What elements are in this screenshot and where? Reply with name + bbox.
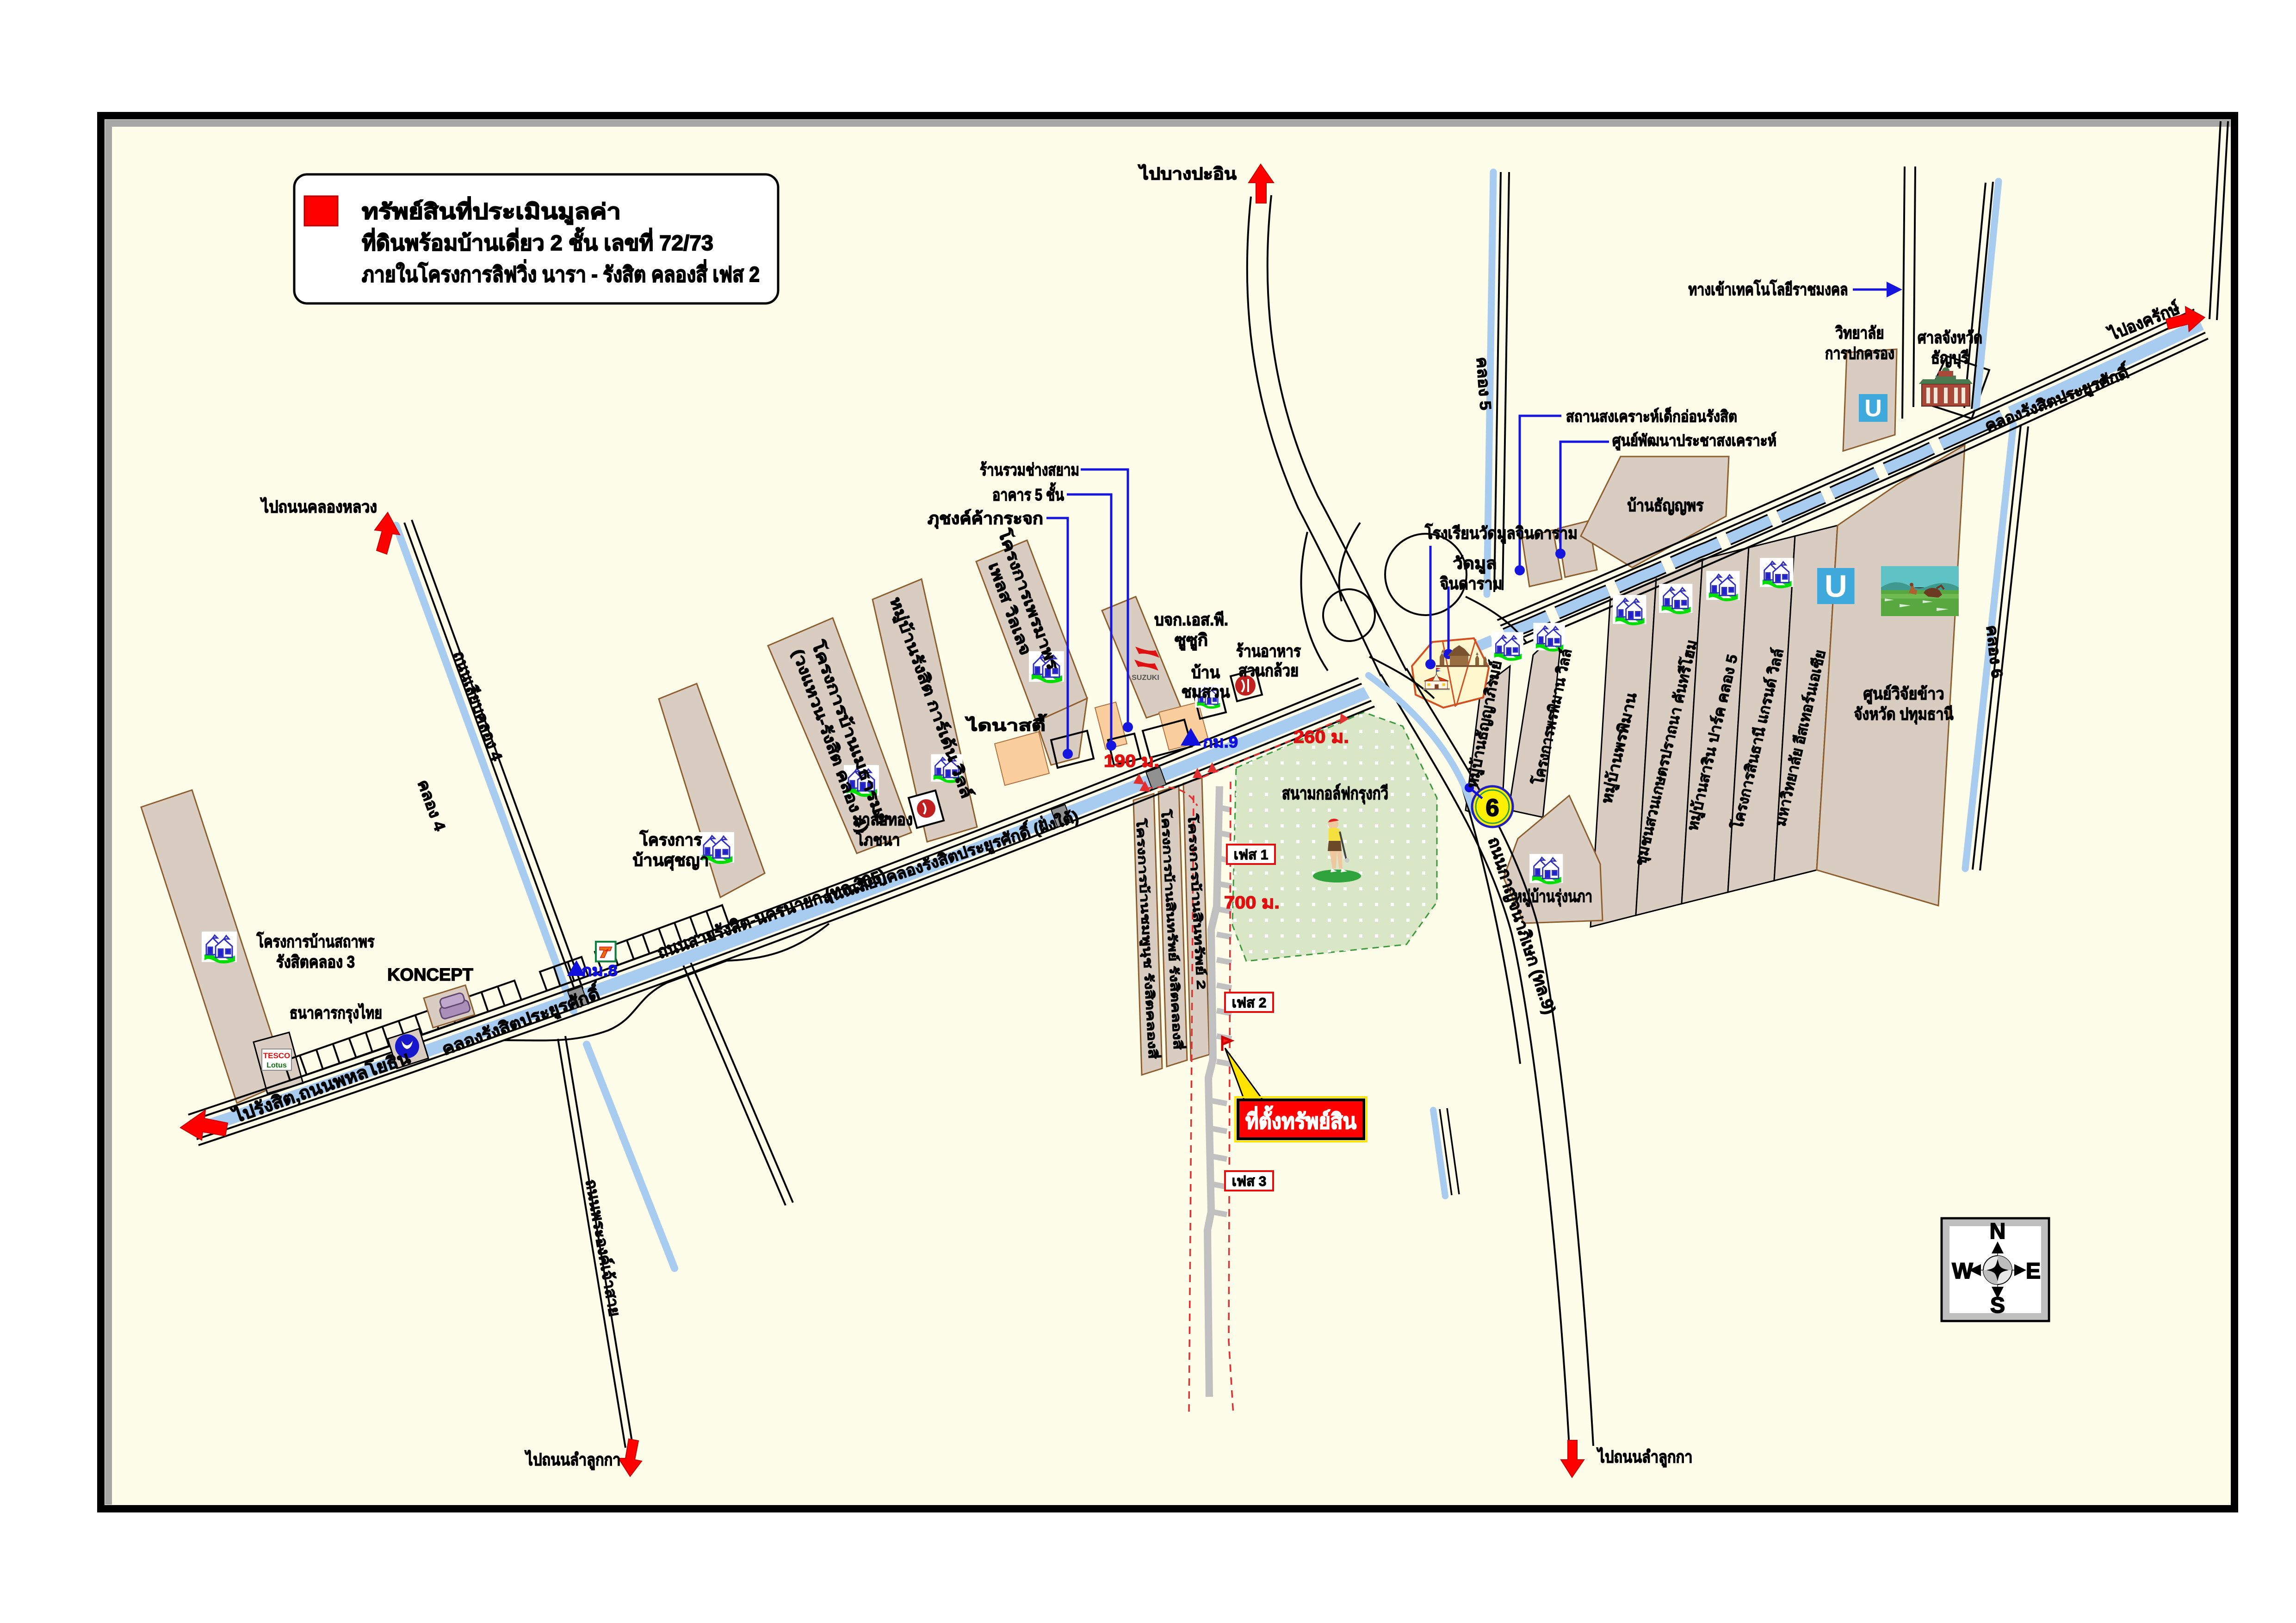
svg-text:สวนกล้วย: สวนกล้วย [1238,661,1299,680]
svg-text:ธนาคารกรุงไทย: ธนาคารกรุงไทย [290,1003,382,1024]
svg-text:การปกครอง: การปกครอง [1825,344,1894,363]
svg-text:อาคาร 5 ชั้น: อาคาร 5 ชั้น [992,482,1064,504]
svg-text:ร้านอาหาร: ร้านอาหาร [1236,642,1301,660]
svg-text:N: N [1990,1219,2006,1244]
svg-text:ศูนย์พัฒนาประชาสงเคราะห์: ศูนย์พัฒนาประชาสงเคราะห์ [1612,432,1776,450]
svg-text:หมู่บ้านรุ่งนภา: หมู่บ้านรุ่งนภา [1514,887,1592,907]
svg-text:บจก.เอส.พี.: บจก.เอส.พี. [1154,610,1228,629]
svg-text:ไปถนนคลองหลวง: ไปถนนคลองหลวง [260,497,377,516]
svg-text:ทางเข้าเทคโนโลยีราชมงคล: ทางเข้าเทคโนโลยีราชมงคล [1689,279,1848,299]
svg-text:ไปถนนลำลูกกา: ไปถนนลำลูกกา [1596,1447,1692,1468]
svg-text:วิทยาลัย: วิทยาลัย [1835,323,1884,342]
svg-text:ไดนาสตี้: ไดนาสตี้ [965,714,1047,734]
svg-text:E: E [2026,1259,2041,1284]
svg-text:บ้านศุชญา: บ้านศุชญา [633,851,709,871]
svg-text:ภายในโครงการลิฟวิ่ง นารา - รัง: ภายในโครงการลิฟวิ่ง นารา - รังสิต คลองสี… [362,259,760,286]
svg-text:Lotus: Lotus [266,1061,287,1069]
svg-text:ศาลจังหวัด: ศาลจังหวัด [1918,328,1982,347]
svg-text:ศูนย์วิจัยข้าว: ศูนย์วิจัยข้าว [1863,684,1944,704]
svg-text:S: S [1990,1293,2005,1318]
svg-text:มาลัยทอง: มาลัยทอง [853,810,913,829]
svg-text:ที่ตั้งทรัพย์สิน: ที่ตั้งทรัพย์สิน [1245,1105,1357,1133]
svg-text:สนามกอล์ฟกรุงกวี: สนามกอล์ฟกรุงกวี [1282,784,1388,804]
svg-text:โรงเรียนวัดมูลจินดาราม: โรงเรียนวัดมูลจินดาราม [1424,523,1578,544]
svg-text:700 ม.: 700 ม. [1224,893,1280,913]
svg-text:ไปถนนลำลูกกา: ไปถนนลำลูกกา [524,1450,620,1470]
svg-text:ซูซูกิ: ซูซูกิ [1175,630,1208,651]
svg-text:เฟส 3: เฟส 3 [1232,1174,1267,1189]
svg-text:จังหวัด ปทุมธานี: จังหวัด ปทุมธานี [1854,704,1954,725]
svg-text:260 ม.: 260 ม. [1293,728,1349,747]
svg-text:ชมสวน: ชมสวน [1182,682,1230,701]
svg-text:รังสิตคลอง 3: รังสิตคลอง 3 [276,952,355,971]
svg-text:W: W [1952,1259,1973,1284]
svg-text:6: 6 [1486,795,1499,821]
svg-text:ร้านรวมช่างสยาม: ร้านรวมช่างสยาม [980,460,1079,479]
svg-text:ธัญบุรี: ธัญบุรี [1931,348,1969,369]
svg-text:วัดมูล: วัดมูล [1453,554,1497,574]
svg-text:กม.8: กม.8 [582,962,618,980]
svg-text:เฟส 2: เฟส 2 [1232,995,1267,1011]
svg-text:โภชนา: โภชนา [856,830,900,849]
svg-text:ทรัพย์สินที่ประเมินมูลค่า: ทรัพย์สินที่ประเมินมูลค่า [362,197,621,225]
svg-text:KONCEPT: KONCEPT [387,965,473,985]
svg-text:จินดาราม: จินดาราม [1440,574,1503,593]
svg-text:ภุชงค์ค้ากระจก: ภุชงค์ค้ากระจก [928,509,1043,529]
svg-text:กม.9: กม.9 [1203,734,1238,751]
svg-text:ไปบางปะอิน: ไปบางปะอิน [1138,164,1237,183]
svg-text:เฟส 1: เฟส 1 [1234,847,1269,863]
svg-text:สถานสงเคราะห์เด็กอ่อนรังสิต: สถานสงเคราะห์เด็กอ่อนรังสิต [1566,407,1737,426]
svg-text:190 ม.: 190 ม. [1104,752,1159,771]
svg-text:โครงการบ้านสถาพร: โครงการบ้านสถาพร [256,932,375,951]
svg-text:โครงการ: โครงการ [639,830,703,849]
svg-text:TESCO: TESCO [263,1051,291,1060]
svg-text:ที่ดินพร้อมบ้านเดี่ยว 2 ชั้น เ: ที่ดินพร้อมบ้านเดี่ยว 2 ชั้น เลขที่ 72/7… [362,227,713,255]
svg-text:บ้านธัญญพร: บ้านธัญญพร [1628,496,1704,515]
svg-text:คลอง 5: คลอง 5 [1473,357,1494,411]
svg-text:บ้าน: บ้าน [1191,663,1220,682]
